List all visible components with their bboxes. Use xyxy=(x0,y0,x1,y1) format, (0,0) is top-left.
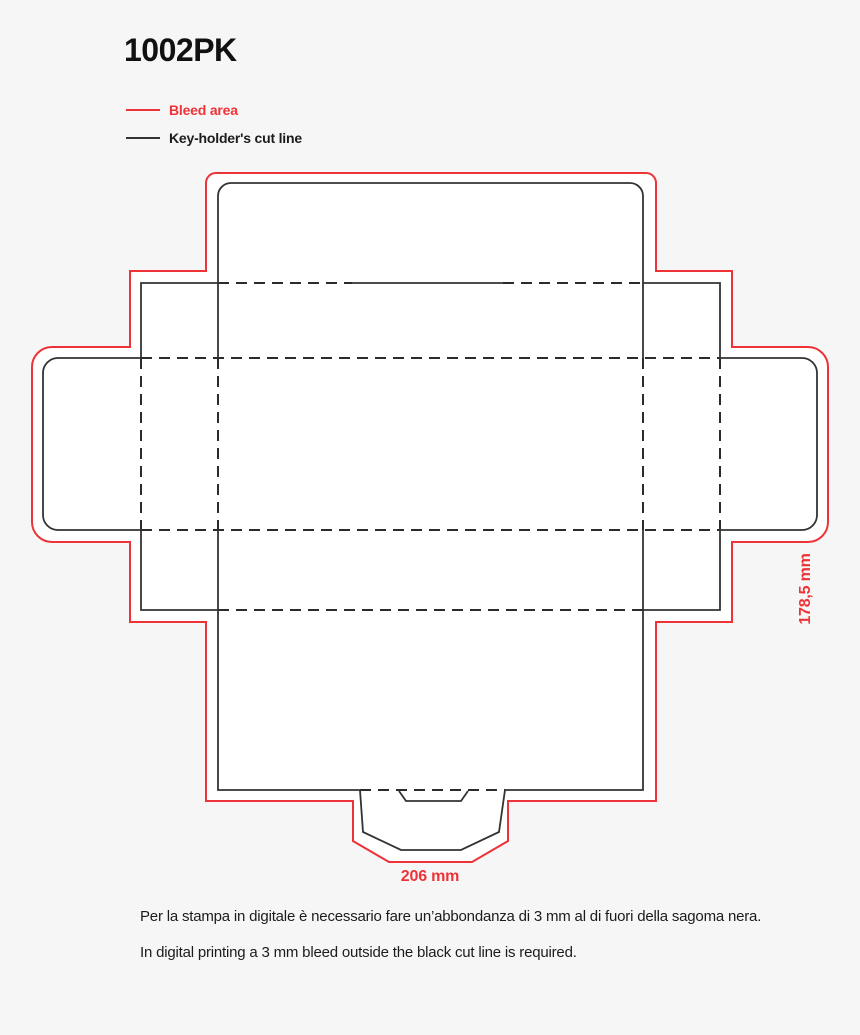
bleed-outline-path xyxy=(32,173,828,862)
footer-note-english: In digital printing a 3 mm bleed outside… xyxy=(140,944,761,961)
width-dimension-label: 206 mm xyxy=(380,868,480,886)
footer-note-italian: Per la stampa in digitale è necessario f… xyxy=(140,908,761,925)
footer-notes: Per la stampa in digitale è necessario f… xyxy=(140,908,761,980)
page: 1002PK Bleed area Key-holder's cut line … xyxy=(0,0,860,1035)
height-dimension-label: 178,5 mm xyxy=(797,539,815,639)
